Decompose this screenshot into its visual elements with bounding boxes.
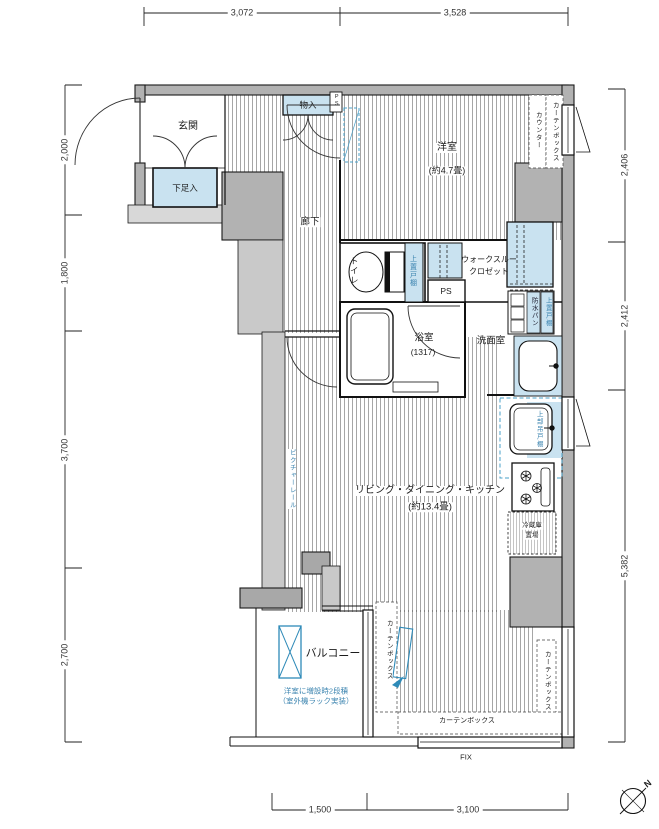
wall-west-block xyxy=(222,172,283,240)
label-curtain-box-west: カーテンボックス xyxy=(384,620,393,680)
label-ldk-size: (約13.4畳) xyxy=(407,502,453,512)
dim-bottom-2: 3,100 xyxy=(454,806,483,815)
label-ps-shaft: PS xyxy=(333,94,339,108)
wall-notch-bedroom xyxy=(515,163,562,222)
label-waterproof-pan: 防水パン xyxy=(530,297,537,327)
label-wtc-2: クロゼット xyxy=(469,268,509,276)
kitchen-sink xyxy=(510,404,552,454)
casement-swing-kitchen xyxy=(576,399,590,446)
label-bedroom-size: (約4.7畳) xyxy=(428,167,467,176)
wall-top xyxy=(137,85,568,95)
dim-top-2: 3,528 xyxy=(441,9,470,18)
floor-plan: 3,072 3,528 2,000 1,800 3,700 2,700 2,40… xyxy=(0,0,659,829)
label-entrance: 玄関 xyxy=(178,122,198,132)
label-upper-cabinet-toilet: 上置戸棚 xyxy=(410,255,417,287)
label-curtain-box-south: カーテンボックス xyxy=(438,718,496,725)
window-fix xyxy=(418,737,562,748)
label-ps: PS xyxy=(440,287,451,296)
label-fridge-1: 冷蔵庫 xyxy=(521,523,543,530)
label-shoe-box: 下足入 xyxy=(172,184,198,193)
bath-counter xyxy=(393,382,438,392)
label-counter: カウンター xyxy=(533,111,542,149)
wall-balcony-pier xyxy=(322,566,340,610)
label-balcony-note-1: 洋室に増設時2段積 xyxy=(284,687,348,695)
label-curtain-box-southeast: カーテンボックス xyxy=(542,651,551,711)
label-hanging-cabinet-kitchen: 上部吊戸棚 xyxy=(535,410,542,448)
dim-bottom-1: 1,500 xyxy=(306,806,335,815)
wall-west-band xyxy=(262,332,285,610)
label-bath-size: (1317) xyxy=(411,348,436,357)
label-corridor: 廊下 xyxy=(299,217,320,227)
dim-left-3: 3,700 xyxy=(61,436,70,465)
entrance-door-arc xyxy=(75,98,140,165)
label-washroom: 洗面室 xyxy=(477,336,506,346)
label-storage: 物入 xyxy=(299,101,316,110)
wtc-left-closet xyxy=(428,243,462,278)
label-balcony-note-2: （室外機ラック実装） xyxy=(279,697,354,705)
bathtub xyxy=(347,309,393,384)
wall-kitchen-south xyxy=(510,557,562,627)
label-balcony: バルコニー xyxy=(306,649,361,660)
label-bath: 浴室 xyxy=(414,333,433,343)
label-bedroom: 洋室 xyxy=(436,143,458,153)
casement-swing-bedroom xyxy=(576,107,590,152)
wall-west-mid xyxy=(238,240,283,334)
label-curtain-box-bedroom: カーテンボックス xyxy=(550,102,559,162)
wall-balcony-block xyxy=(240,588,302,608)
label-upper-cabinet-laundry: 上置戸棚 xyxy=(544,297,551,327)
dim-right-1: 2,406 xyxy=(621,151,630,180)
wall-east-1 xyxy=(562,85,574,105)
shoe-cabinet-door-arc-right xyxy=(185,136,217,168)
dim-right-2: 2,412 xyxy=(621,302,630,331)
label-ldk: リビング・ダイニング・キッチン xyxy=(354,486,506,496)
label-wtc-1: ウォークスルー xyxy=(461,256,517,264)
dim-left-4: 2,700 xyxy=(61,641,70,670)
wall-east-3 xyxy=(562,448,574,628)
label-fridge-2: 置場 xyxy=(525,533,540,540)
compass-icon xyxy=(620,788,646,814)
label-picture-rail: ピクチャーレール xyxy=(287,449,296,509)
dim-left-2: 1,800 xyxy=(61,259,70,288)
label-fix-window: FIX xyxy=(460,753,472,761)
dim-top-1: 3,072 xyxy=(228,9,257,18)
corridor-floor-lower xyxy=(283,173,340,333)
wall-east-2 xyxy=(562,153,574,397)
shoe-cabinet-door-arc-left xyxy=(153,136,185,168)
dim-left-1: 2,000 xyxy=(61,136,70,165)
dim-right-3: 5,382 xyxy=(621,552,630,581)
stove-grill xyxy=(541,468,550,506)
label-toilet: トイレ xyxy=(350,257,359,286)
